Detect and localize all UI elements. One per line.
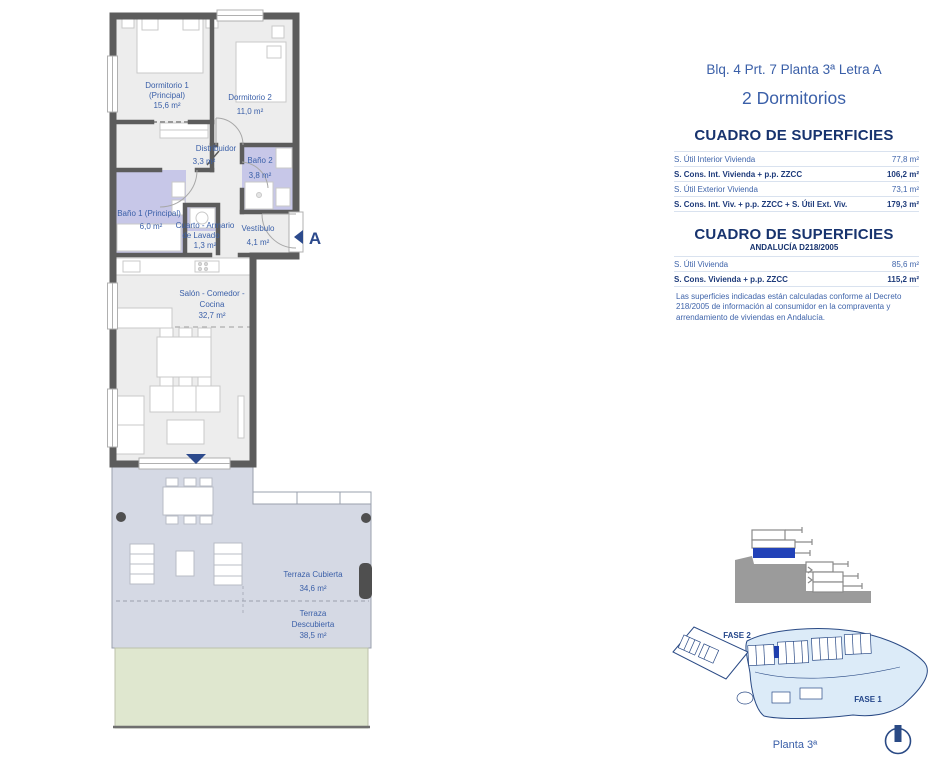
room-area-dormitorio2: 11,0 m² [237,107,264,116]
row-value: 179,3 m² [887,200,919,209]
room-area-bano2: 3,8 m² [249,171,272,180]
room-area-vestibulo: 4,1 m² [247,238,270,247]
table-row: S. Cons. Vivienda + p.p. ZZCC 115,2 m² [674,272,919,287]
room-label-lavado2: de Lavado [182,231,220,240]
room-area-distribuidor: 3,3 m² [193,157,216,166]
floor-plan-page: Dormitorio 1 (Principal) 15,6 m² Dormito… [0,0,928,763]
unit-location-marker [774,646,779,658]
row-value: 106,2 m² [887,170,919,179]
room-label-terraza-descubierta: Terraza [300,609,327,618]
row-value: 77,8 m² [892,155,919,164]
room-label-salon2: Cocina [200,300,225,309]
room-area-terraza-descubierta: 38,5 m² [299,631,326,640]
andalucia-table: S. Útil Vivienda 85,6 m² S. Cons. Vivien… [674,256,919,287]
row-label: S. Cons. Vivienda + p.p. ZZCC [674,275,788,284]
room-label-distribuidor: Distribuidor [196,144,237,153]
garden-area [115,648,368,728]
section-marker-a: A [309,229,321,248]
room-label-terraza-descubierta2: Descubierta [292,620,335,629]
page-subtitle: 2 Dormitorios [660,88,928,109]
fase1-label: FASE 1 [854,695,882,704]
terrace-balustrade [253,492,371,504]
row-value: 115,2 m² [887,275,919,284]
building-section-diagram [720,520,880,615]
north-compass-icon [880,720,925,763]
room-label-dormitorio2: Dormitorio 2 [228,93,272,102]
table-row: S. Cons. Int. Viv. + p.p. ZZCC + S. Útil… [674,197,919,212]
room-label-bano2: Baño 2 [247,156,273,165]
highlighted-floor [753,548,795,558]
room-label-dormitorio1-sub: (Principal) [149,91,185,100]
room-area-lavado: 1,3 m² [194,241,217,250]
room-area-salon: 32,7 m² [198,311,225,320]
table-row: S. Útil Vivienda 85,6 m² [674,256,919,272]
row-label: S. Útil Vivienda [674,260,728,269]
andalucia-table-subheading: ANDALUCÍA D218/2005 [660,243,928,252]
row-label: S. Cons. Int. Vivienda + p.p. ZZCC [674,170,802,179]
page-title: Blq. 4 Prt. 7 Planta 3ª Letra A [660,62,928,77]
room-label-bano1: Baño 1 (Principal) [117,209,181,218]
room-area-dormitorio1: 15,6 m² [153,101,180,110]
table-row: S. Útil Exterior Vivienda 73,1 m² [674,182,919,197]
legal-note: Las superficies indicadas están calculad… [676,292,902,323]
surfaces-table-heading: CUADRO DE SUPERFICIES [660,127,928,144]
room-area-bano1: 6,0 m² [140,222,163,231]
room-label-lavado: Cuarto - Armario [176,221,235,230]
row-label: S. Útil Exterior Vivienda [674,185,758,194]
room-area-terraza-cubierta: 34,6 m² [299,584,326,593]
row-label: S. Cons. Int. Viv. + p.p. ZZCC + S. Útil… [674,200,847,209]
room-label-dormitorio1: Dormitorio 1 [145,81,189,90]
table-row: S. Útil Interior Vivienda 77,8 m² [674,151,919,167]
floorplan-drawing: Dormitorio 1 (Principal) 15,6 m² Dormito… [0,0,480,763]
terrain [735,556,871,603]
table-row: S. Cons. Int. Vivienda + p.p. ZZCC 106,2… [674,167,919,182]
andalucia-table-heading: CUADRO DE SUPERFICIES [660,226,928,243]
row-label: S. Útil Interior Vivienda [674,155,755,164]
row-value: 85,6 m² [892,260,919,269]
room-label-vestibulo: Vestíbulo [242,224,275,233]
surfaces-table: S. Útil Interior Vivienda 77,8 m² S. Con… [674,151,919,212]
room-label-terraza-cubierta: Terraza Cubierta [283,570,343,579]
row-value: 73,1 m² [892,185,919,194]
room-label-salon: Salón - Comedor - [179,289,245,298]
fase2-label: FASE 2 [723,631,751,640]
